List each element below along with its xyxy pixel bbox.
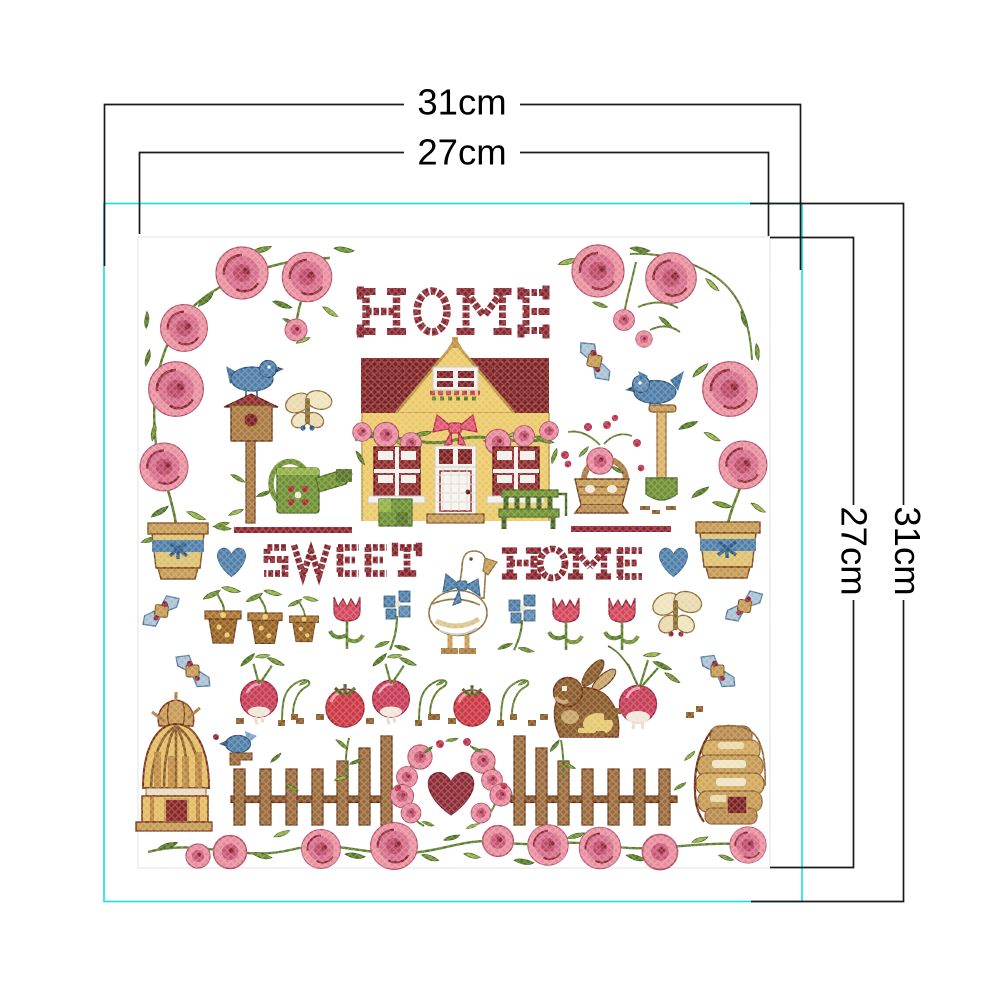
svg-text:27cm: 27cm (417, 132, 506, 173)
svg-text:31cm: 31cm (417, 82, 506, 123)
svg-text:31cm: 31cm (887, 506, 928, 595)
svg-text:27cm: 27cm (834, 506, 875, 595)
